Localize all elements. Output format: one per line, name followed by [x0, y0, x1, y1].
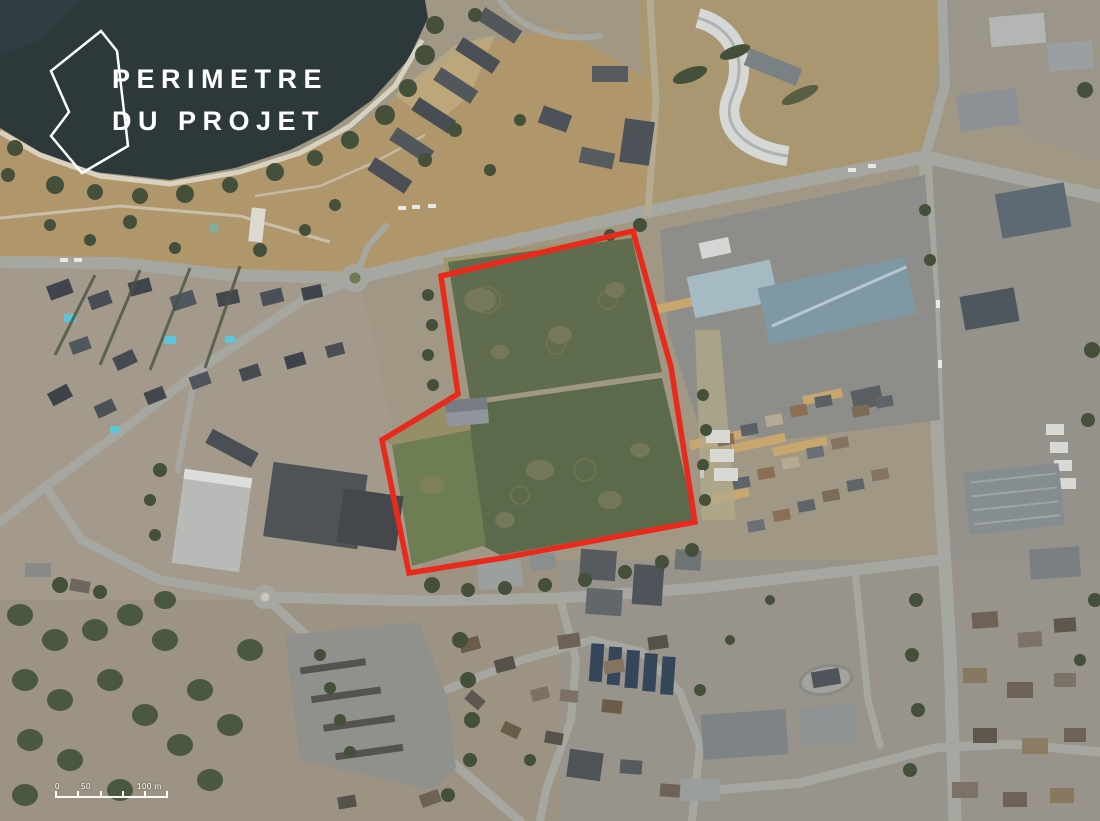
scale-label-mid: 50 [81, 783, 91, 791]
aerial-map: PERIMETRE DU PROJET 0 50 100 m [0, 0, 1100, 821]
scale-label-max: 100 m [137, 783, 162, 791]
scale-bar: 0 50 100 m [55, 786, 169, 802]
map-image [0, 0, 1100, 821]
scale-label-0: 0 [55, 783, 60, 791]
scale-bar-line [55, 796, 167, 798]
